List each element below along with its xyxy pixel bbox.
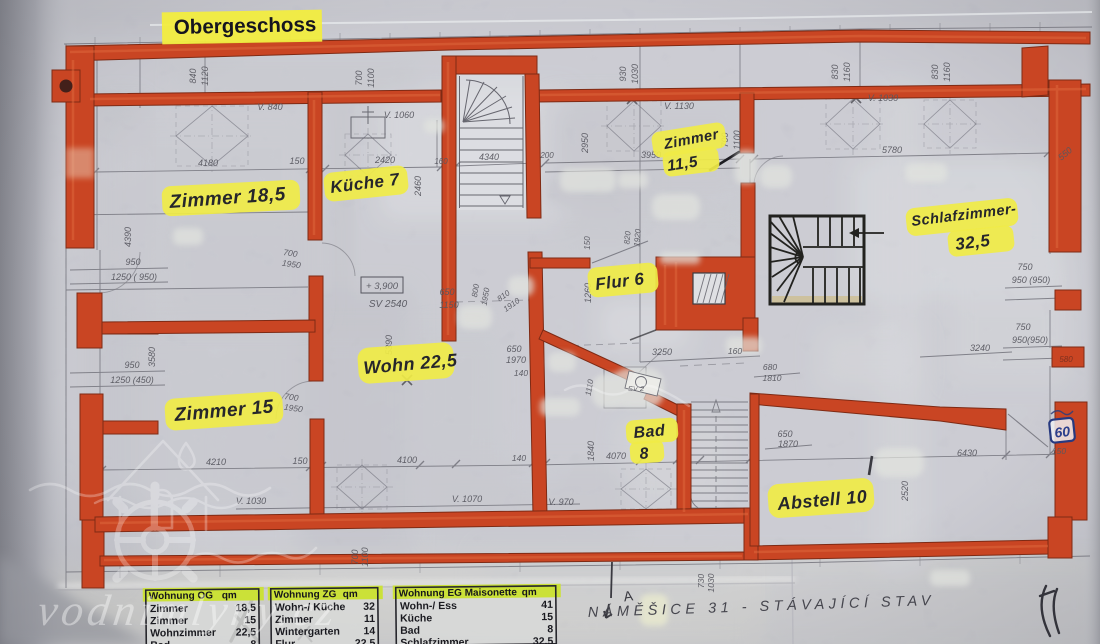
svg-text:Wohnung EG Maisonette: Wohnung EG Maisonette xyxy=(399,587,518,599)
svg-text:V. 1030: V. 1030 xyxy=(868,93,898,103)
svg-text:6430: 6430 xyxy=(957,448,977,458)
svg-text:150: 150 xyxy=(583,236,592,250)
svg-text:1160: 1160 xyxy=(842,62,852,81)
svg-text:1100: 1100 xyxy=(360,547,370,566)
svg-text:41: 41 xyxy=(541,599,553,611)
svg-text:4390: 4390 xyxy=(123,227,133,247)
svg-text:140: 140 xyxy=(512,453,526,463)
svg-text:qm: qm xyxy=(522,587,537,598)
svg-text:830: 830 xyxy=(930,64,940,79)
svg-text:1160: 1160 xyxy=(942,62,952,81)
svg-text:V. 1030: V. 1030 xyxy=(236,496,266,506)
svg-text:Schlafzimmer: Schlafzimmer xyxy=(400,636,468,644)
svg-text:vodnimlyny.cz: vodnimlyny.cz xyxy=(35,586,342,635)
svg-text:1970: 1970 xyxy=(506,355,526,365)
svg-text:840: 840 xyxy=(188,68,198,83)
svg-text:700: 700 xyxy=(354,70,364,85)
svg-text:1030: 1030 xyxy=(630,64,640,84)
svg-text:650: 650 xyxy=(777,429,792,439)
svg-text:1120: 1120 xyxy=(200,66,210,85)
svg-text:1250 (450): 1250 (450) xyxy=(110,375,154,385)
svg-text:qm: qm xyxy=(343,589,358,600)
svg-text:1100: 1100 xyxy=(366,68,376,87)
svg-text:930: 930 xyxy=(618,66,628,81)
svg-text:V. 840: V. 840 xyxy=(257,102,282,112)
svg-text:950(950): 950(950) xyxy=(1012,335,1048,345)
svg-text:830: 830 xyxy=(830,64,840,79)
svg-text:3240: 3240 xyxy=(970,343,990,353)
svg-text:140: 140 xyxy=(514,368,528,378)
svg-text:1150: 1150 xyxy=(439,300,458,310)
svg-text:V. 1070: V. 1070 xyxy=(452,494,482,504)
svg-text:1920: 1920 xyxy=(632,228,643,247)
svg-text:950: 950 xyxy=(124,360,139,370)
svg-text:Flur: Flur xyxy=(275,638,295,644)
svg-text:750: 750 xyxy=(1015,322,1030,332)
svg-text:32,5: 32,5 xyxy=(533,635,554,644)
svg-text:160: 160 xyxy=(434,157,448,166)
svg-text:V. 970: V. 970 xyxy=(548,497,573,507)
svg-text:730: 730 xyxy=(696,574,706,588)
svg-text:1100: 1100 xyxy=(732,130,742,149)
svg-text:2520: 2520 xyxy=(900,481,910,502)
svg-text:Bad: Bad xyxy=(400,625,420,637)
svg-text:V. 1130: V. 1130 xyxy=(664,101,694,111)
svg-text:22,5: 22,5 xyxy=(355,637,376,644)
svg-text:1810: 1810 xyxy=(763,373,782,383)
svg-text:3250: 3250 xyxy=(652,347,672,357)
svg-text:60: 60 xyxy=(1054,423,1071,441)
svg-text:580: 580 xyxy=(1059,355,1073,364)
svg-text:2420: 2420 xyxy=(374,155,395,165)
svg-text:2460: 2460 xyxy=(413,176,423,197)
svg-text:200: 200 xyxy=(539,151,554,160)
svg-text:950 (950): 950 (950) xyxy=(1012,275,1051,285)
svg-text:2950: 2950 xyxy=(580,133,590,154)
svg-text:11: 11 xyxy=(364,613,375,625)
svg-text:Bad: Bad xyxy=(633,422,667,442)
svg-text:Bad: Bad xyxy=(150,639,170,644)
svg-text:4100: 4100 xyxy=(397,455,417,465)
svg-text:4070: 4070 xyxy=(606,451,626,461)
svg-text:+ 3,900: + 3,900 xyxy=(366,281,399,292)
svg-text:1250 ( 950): 1250 ( 950) xyxy=(111,272,157,282)
svg-text:700: 700 xyxy=(350,549,360,564)
svg-text:15: 15 xyxy=(541,611,553,623)
svg-text:650: 650 xyxy=(439,287,454,297)
svg-text:8: 8 xyxy=(250,639,256,644)
svg-text:650: 650 xyxy=(506,344,521,354)
svg-text:150: 150 xyxy=(1052,446,1066,456)
svg-text:1030: 1030 xyxy=(706,573,716,592)
svg-text:950: 950 xyxy=(125,257,140,267)
svg-text:32: 32 xyxy=(363,601,375,613)
svg-text:4180: 4180 xyxy=(198,158,218,168)
svg-text:820: 820 xyxy=(622,230,632,245)
svg-text:160: 160 xyxy=(728,346,742,356)
svg-text:150: 150 xyxy=(289,156,304,166)
svg-text:150: 150 xyxy=(292,456,307,466)
svg-text:Wohn-/ Ess: Wohn-/ Ess xyxy=(400,600,457,613)
svg-text:4210: 4210 xyxy=(206,457,226,467)
svg-text:4340: 4340 xyxy=(479,152,499,162)
svg-text:1840: 1840 xyxy=(586,441,596,461)
svg-text:3580: 3580 xyxy=(147,347,157,367)
svg-text:8: 8 xyxy=(639,445,650,463)
svg-text:14: 14 xyxy=(363,625,375,637)
svg-text:V. 1060: V. 1060 xyxy=(384,110,414,120)
svg-text:5780: 5780 xyxy=(882,145,902,155)
svg-text:750: 750 xyxy=(1017,262,1032,272)
svg-text:Obergeschoss: Obergeschoss xyxy=(174,13,317,39)
svg-text:1870: 1870 xyxy=(778,439,798,449)
svg-text:8: 8 xyxy=(547,623,553,635)
svg-text:680: 680 xyxy=(763,362,777,372)
svg-text:Küche: Küche xyxy=(400,612,432,624)
svg-text:SV 2540: SV 2540 xyxy=(369,299,408,310)
